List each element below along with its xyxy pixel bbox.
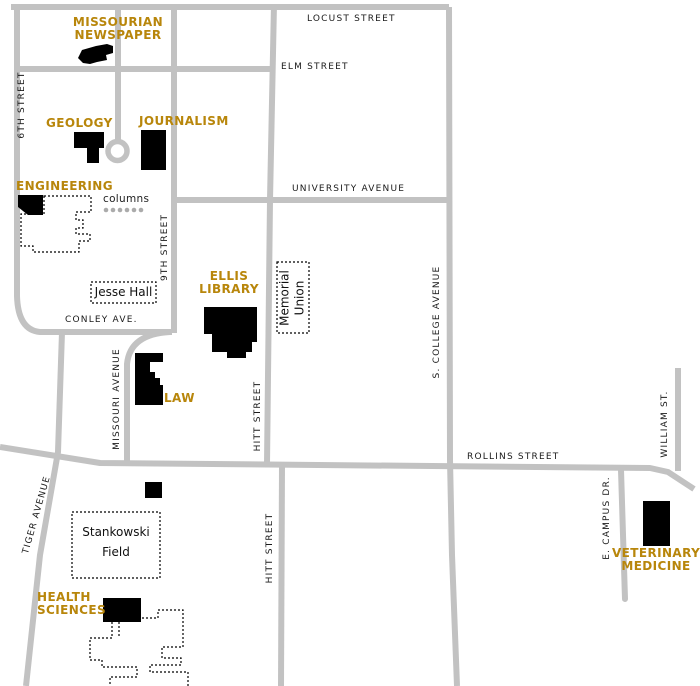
label-rollins-street: ROLLINS STREET <box>467 452 559 462</box>
street-hitt-north <box>267 4 274 464</box>
health-sciences-building <box>103 598 141 622</box>
street-hitt-south <box>281 466 282 686</box>
veterinary-building <box>643 501 670 546</box>
label-jesse-hall: Jesse Hall <box>91 282 156 303</box>
health-line1: HEALTH <box>37 590 91 604</box>
label-memorial-union: MemorialUnion <box>278 263 310 334</box>
label-missouri-avenue: MISSOURI AVENUE <box>112 346 122 452</box>
label-stankowski-field: StankowskiField <box>72 522 160 562</box>
memorial-line2: Union <box>293 281 307 316</box>
campus-map: LOCUST STREET ELM STREET UNIVERSITY AVEN… <box>0 0 700 686</box>
label-law: LAW <box>164 392 195 405</box>
label-hitt-street-south: HITT STREET <box>265 509 275 587</box>
label-william-st: WILLIAM ST. <box>660 387 670 461</box>
ellis-line1: ELLIS <box>210 269 249 283</box>
label-9th-street: 9TH STREET <box>160 215 170 281</box>
ellis-line2: LIBRARY <box>199 282 259 296</box>
label-engineering: ENGINEERING <box>16 180 113 193</box>
missourian-line1: MISSOURIAN <box>73 15 163 29</box>
label-hitt-street-north: HITT STREET <box>253 378 263 454</box>
missourian-line2: NEWSPAPER <box>75 28 162 42</box>
geology-building <box>74 132 104 163</box>
stankowski-line2: Field <box>102 545 130 559</box>
label-conley-ave: CONLEY AVE. <box>65 315 138 325</box>
label-veterinary-medicine: VETERINARYMEDICINE <box>612 547 700 573</box>
label-university-avenue: UNIVERSITY AVENUE <box>292 184 405 194</box>
map-canvas <box>0 0 700 686</box>
street-s-college <box>449 7 457 686</box>
label-elm-street: ELM STREET <box>281 62 349 72</box>
label-columns: columns <box>103 193 149 205</box>
columns-dots <box>104 208 144 213</box>
ellis-library-building <box>204 307 257 358</box>
label-locust-street: LOCUST STREET <box>307 14 396 24</box>
health-line2: SCIENCES <box>37 603 106 617</box>
small-building <box>145 482 162 498</box>
veterinary-line2: MEDICINE <box>621 559 690 573</box>
street-rollins <box>0 447 694 489</box>
label-s-college-avenue: S. COLLEGE AVENUE <box>432 264 442 380</box>
label-6th-street: 6TH STREET <box>17 70 27 140</box>
label-geology: GEOLOGY <box>46 117 113 130</box>
label-missourian-newspaper: MISSOURIANNEWSPAPER <box>70 16 166 42</box>
street-e-campus <box>621 470 625 599</box>
label-health-sciences: HEALTHSCIENCES <box>37 591 106 617</box>
label-e-campus-dr: E. CAMPUS DR. <box>602 472 612 564</box>
hospital-dotted-outline-east <box>142 610 188 686</box>
law-building <box>135 353 163 405</box>
roundabout-circle <box>108 142 127 161</box>
missourian-building <box>78 44 113 64</box>
street-tiger <box>26 332 62 686</box>
hospital-dotted-outline-west <box>90 622 137 686</box>
label-journalism: JOURNALISM <box>139 115 229 128</box>
veterinary-line1: VETERINARY <box>612 546 700 560</box>
engineering-building <box>18 195 43 215</box>
memorial-line1: Memorial <box>278 270 292 326</box>
journalism-building <box>141 130 166 170</box>
label-ellis-library: ELLISLIBRARY <box>194 270 264 296</box>
stankowski-line1: Stankowski <box>82 525 150 539</box>
